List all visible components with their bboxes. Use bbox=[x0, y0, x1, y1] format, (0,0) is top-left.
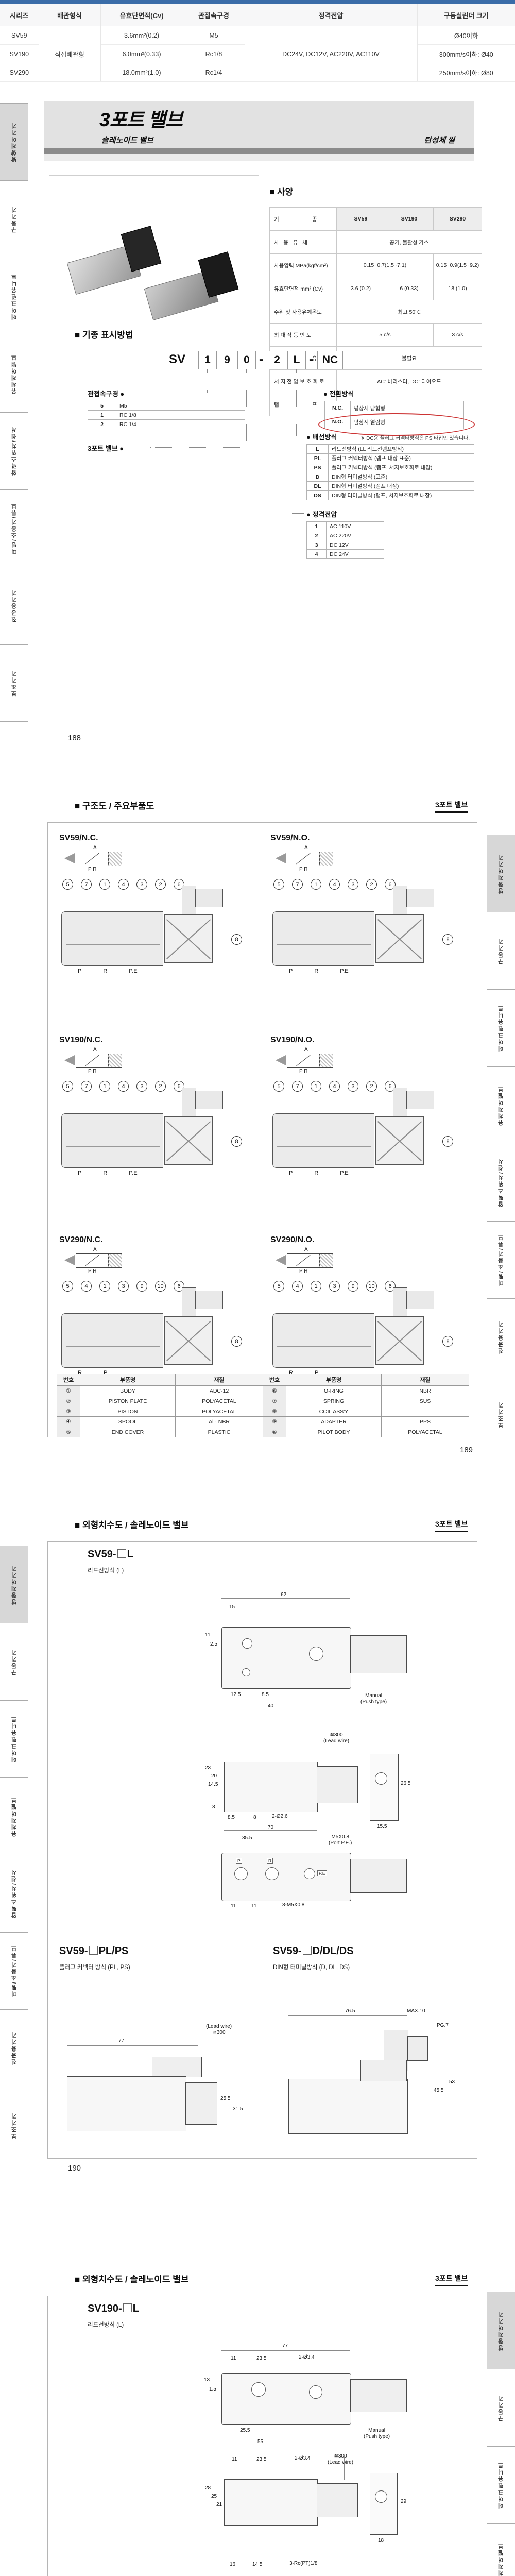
connector-line bbox=[164, 393, 207, 393]
manual-button[interactable] bbox=[309, 1647, 323, 1661]
table-cell: AC 110V bbox=[327, 522, 384, 531]
diagram-sv190-no: SV190/N.O. AP R 5714326 8 PRP.E bbox=[270, 1036, 466, 1178]
voltage-table: 1AC 110V2AC 220V3DC 12V4DC 24V bbox=[306, 521, 384, 559]
dim-pg7: PG.7 bbox=[437, 2023, 449, 2029]
col-series: 시리즈 bbox=[0, 4, 39, 26]
sidebar-tab-label: 보조기기 bbox=[497, 1401, 505, 1428]
table-cell: DS bbox=[307, 491, 329, 500]
callout-number: 1 bbox=[99, 1081, 110, 1092]
table-cell: POLYACETAL bbox=[382, 1427, 469, 1437]
symbol-port-a: A bbox=[93, 1047, 97, 1053]
table-cell: PISTON PLATE bbox=[80, 1396, 176, 1406]
connector-line bbox=[207, 369, 208, 393]
table-row: ④SPOOLAl · NBR⑨ADAPTERPPS bbox=[57, 1417, 469, 1427]
table-cell: DC24V, DC12V, AC220V, AC110V bbox=[245, 26, 417, 82]
dim-2-d3.4: 2-Ø3.4 bbox=[295, 2455, 311, 2462]
sidebar-tab-label: 진공용기기 bbox=[10, 2031, 19, 2065]
table-cell: 직접배관형 bbox=[39, 26, 100, 82]
table-cell: N.C. bbox=[325, 401, 351, 415]
table-row: ①BODYADC-12⑥O-RINGNBR bbox=[57, 1386, 469, 1396]
sidebar-tab-유체제어밸브[interactable]: 유체제어밸브 bbox=[487, 1067, 515, 1144]
callout-number: 3 bbox=[329, 1281, 340, 1292]
symbol-spring bbox=[276, 1055, 286, 1065]
dim-28: 28 bbox=[205, 2485, 211, 2492]
table-cell: BODY bbox=[80, 1386, 176, 1396]
model-code-section-title: ■ 기종 표시방법 bbox=[75, 328, 133, 341]
table-cell: 3 c/s bbox=[434, 324, 482, 347]
table-cell: DC 24V bbox=[327, 550, 384, 559]
dim-23.5: 23.5 bbox=[256, 2355, 266, 2362]
valve-symbol: AP R bbox=[59, 845, 142, 875]
symbol-port-a: A bbox=[304, 1047, 308, 1053]
callout-number: 4 bbox=[81, 1281, 92, 1292]
wiring-note: ※ DC용 플러그 커넥터방식은 PS 타입만 있습니다. bbox=[360, 434, 470, 442]
parts-col-material: 재질 bbox=[382, 1374, 469, 1386]
dim-3: 3 bbox=[212, 1804, 215, 1810]
table-cell: L bbox=[307, 445, 329, 454]
sidebar-tab-방향제어기기[interactable]: 방향제어기기 bbox=[487, 2292, 515, 2369]
title-divider-strip bbox=[44, 154, 474, 161]
dim-40: 40 bbox=[268, 1703, 273, 1709]
table-row: DSDIN형 터미널방식 (램프, 서지보호회로 내장) bbox=[307, 491, 474, 500]
table-row: 기 종SV59SV190SV290 bbox=[270, 208, 482, 231]
voltage-placeholder-box bbox=[89, 1946, 98, 1955]
dim-77: 77 bbox=[282, 2343, 288, 2349]
table-cell: 3 bbox=[307, 540, 327, 550]
voltage-label: ● 정격전압 bbox=[306, 509, 337, 519]
table-cell: RC 1/4 bbox=[116, 420, 245, 429]
sidebar-tab-압력스위치/센서[interactable]: 압력스위치/센서 bbox=[0, 1855, 28, 1933]
plug-stem bbox=[182, 1287, 196, 1318]
parts-header-row: 번호 부품명 재질 번호 부품명 재질 bbox=[57, 1374, 469, 1386]
dim-16: 16 bbox=[230, 2562, 235, 2568]
port-label: P.E bbox=[340, 968, 348, 974]
overview-table: 시리즈 배관형식 유효단면적(Cv) 관접속구경 정격전압 구동실린더 크기 S… bbox=[0, 4, 515, 82]
dim-3-m5x0.8: 3-M5X0.8 bbox=[282, 1902, 304, 1908]
model-code-sv59-l: SV59-L bbox=[88, 1549, 133, 1561]
spec-section-title: ■ 사양 bbox=[269, 184, 293, 197]
sidebar-tab-유체제어밸브[interactable]: 유체제어밸브 bbox=[487, 2524, 515, 2576]
callout-number: 5 bbox=[273, 1281, 284, 1292]
coil-assembly bbox=[375, 1116, 424, 1165]
screw-hole bbox=[375, 1772, 387, 1785]
dim-8: 8 bbox=[253, 1815, 256, 1821]
valve-body bbox=[272, 911, 374, 966]
code-suffix: L bbox=[133, 2303, 139, 2314]
port-hole bbox=[242, 1638, 252, 1649]
sidebar-tab-에어크린유니트[interactable]: 에어크린유니트 bbox=[487, 2447, 515, 2524]
valve-body bbox=[272, 1313, 374, 1368]
model-code-dash1: - bbox=[259, 352, 263, 367]
table-cell: 5 c/s bbox=[337, 324, 434, 347]
sidebar-tab-label: 피팅/소음기/튜브 bbox=[497, 1234, 505, 1286]
symbol-ports: P R bbox=[299, 1069, 308, 1074]
sidebar-tab-보조기기[interactable]: 보조기기 bbox=[0, 645, 28, 722]
diagram-title: SV190/N.C. bbox=[59, 1036, 255, 1045]
sidebar-tab-label: 에어크린유니트 bbox=[497, 2462, 505, 2509]
page-subtitle: 솔레노이드 밸브 bbox=[101, 134, 153, 145]
table-row: DLDIN형 터미널방식 (램프 내장) bbox=[307, 482, 474, 491]
sidebar-tab-진공용기기[interactable]: 진공용기기 bbox=[0, 2010, 28, 2087]
sidebar-tab-label: 방향제어기기 bbox=[10, 1565, 19, 1605]
lead-wire bbox=[201, 2066, 232, 2066]
port-hole bbox=[242, 1668, 250, 1676]
dimension-line bbox=[224, 1830, 317, 1831]
table-row: 주위 및 사용유체온도최고 50℃ bbox=[270, 300, 482, 324]
callout-number: 4 bbox=[329, 879, 340, 890]
dim-21: 21 bbox=[216, 2502, 222, 2508]
table-cell: 공기, 불활성 가스 bbox=[337, 231, 482, 254]
sidebar-tab-피팅/소음기/튜브[interactable]: 피팅/소음기/튜브 bbox=[0, 490, 28, 567]
table-cell: O-RING bbox=[286, 1386, 382, 1396]
port-label: R bbox=[314, 1170, 318, 1176]
model-code-wiring[interactable]: L bbox=[287, 351, 306, 369]
sidebar-tab-방향제어기기[interactable]: 방향제어기기 bbox=[487, 835, 515, 912]
top-view-connector bbox=[350, 2379, 407, 2412]
plug-head bbox=[406, 889, 434, 907]
code-prefix: SV59- bbox=[59, 1945, 88, 1957]
connector-line bbox=[246, 369, 247, 447]
col-area: 유효단면적(Cv) bbox=[100, 4, 183, 26]
model-code-sv: SV bbox=[169, 352, 185, 367]
table-row: 서 지 전 압 보 호 회 로AC: 바리스터, DC: 다이오드 bbox=[270, 370, 482, 393]
sidebar-tab-에어크린유니트[interactable]: 에어크린유니트 bbox=[0, 1701, 28, 1778]
callout-row: 5714326 bbox=[273, 879, 466, 890]
table-cell: PL bbox=[307, 454, 329, 463]
lead-wire-line bbox=[344, 2455, 345, 2480]
symbol-ports: P R bbox=[88, 1069, 97, 1074]
top-view-body bbox=[221, 2373, 351, 2425]
screw-hole bbox=[375, 2490, 387, 2503]
sidebar-tab-label: 에어크린유니트 bbox=[10, 1716, 19, 1762]
port-r-hole bbox=[265, 1867, 279, 1880]
side-view-solenoid bbox=[317, 1766, 358, 1803]
structure-section-title: ■ 구조도 / 주요부품도 bbox=[75, 799, 154, 811]
callout-number: 1 bbox=[99, 879, 110, 890]
title-block: 3포트 밸브 솔레노이드 밸브 탄성체 씰 bbox=[44, 101, 474, 148]
port-size-label: 관접속구경 ● bbox=[88, 388, 124, 398]
port-pe-hole bbox=[304, 1868, 315, 1879]
model-desc: DIN형 터미널방식 (D, DL, DS) bbox=[273, 1963, 350, 1971]
table-cell: RC 1/8 bbox=[116, 411, 245, 420]
model-code-sv59-d: SV59-D/DL/DS bbox=[273, 1945, 354, 1957]
table-cell: 1 bbox=[88, 411, 116, 420]
sidebar-tab-유체제어밸브[interactable]: 유체제어밸브 bbox=[0, 1778, 28, 1855]
symbol-coil bbox=[319, 852, 333, 866]
label-manual: Manual (Push type) bbox=[360, 1693, 387, 1705]
pl-endblock bbox=[185, 2082, 217, 2125]
table-cell: 최 대 작 동 빈 도 bbox=[270, 324, 337, 347]
table-cell: 6.0mm²(0.33) bbox=[100, 45, 183, 63]
sidebar-tab-방향제어기기[interactable]: 방향제어기기 bbox=[0, 1546, 28, 1623]
d-solenoid bbox=[360, 2060, 407, 2081]
model-code-digit-9[interactable]: 9 bbox=[218, 351, 236, 369]
dimension-line bbox=[288, 2015, 407, 2016]
plug-stem bbox=[393, 1088, 407, 1118]
sidebar-tab-label: 보조기기 bbox=[10, 670, 19, 697]
table-cell: Ø40이하 bbox=[417, 26, 515, 45]
bottom-view-connector bbox=[350, 1859, 407, 1893]
dim-45.5: 45.5 bbox=[434, 2088, 443, 2094]
sidebar-tab-압력스위치/센서[interactable]: 압력스위치/센서 bbox=[487, 1144, 515, 1222]
port-hole bbox=[251, 2382, 266, 2397]
callout-number: 2 bbox=[155, 879, 166, 890]
table-cell: DIN형 터미널방식 (램프, 서지보호회로 내장) bbox=[329, 491, 474, 500]
table-cell: SV59 bbox=[337, 208, 385, 231]
symbol-coil bbox=[319, 1253, 333, 1268]
model-code-digit-0[interactable]: 0 bbox=[237, 351, 256, 369]
table-row: PS플러그 커넥터방식 (램프, 서지보호회로 내장) bbox=[307, 463, 474, 472]
table-cell: ADAPTER bbox=[286, 1417, 382, 1427]
symbol-box bbox=[287, 1054, 320, 1068]
callout-number: 2 bbox=[366, 1081, 377, 1092]
table-cell: M5 bbox=[183, 26, 245, 45]
sidebar-tab-구동기기[interactable]: 구동기기 bbox=[487, 2369, 515, 2447]
dim-14.5: 14.5 bbox=[208, 1782, 218, 1788]
model-desc: 리드선방식 (L) bbox=[88, 1566, 124, 1574]
callout-number: 4 bbox=[118, 1081, 129, 1092]
valve-body bbox=[61, 911, 163, 966]
table-row: 2RC 1/4 bbox=[88, 420, 245, 429]
table-cell: ⑦ bbox=[263, 1396, 286, 1406]
cross-section-drawing: 8 RP bbox=[270, 1296, 461, 1378]
callout-number: 1 bbox=[311, 1081, 321, 1092]
sidebar-tab-보조기기[interactable]: 보조기기 bbox=[0, 2087, 28, 2164]
table-cell: PILOT BODY bbox=[286, 1427, 382, 1437]
label-lead-wire: ≅300 (Lead wire) bbox=[328, 2453, 353, 2466]
table-cell: 5 bbox=[88, 401, 116, 411]
diagram-title: SV59/N.O. bbox=[270, 834, 466, 843]
symbol-port-a: A bbox=[93, 845, 97, 851]
table-cell: 250mm/s이하: Ø80 bbox=[417, 63, 515, 82]
table-cell: ⑧ bbox=[263, 1406, 286, 1417]
port-label: P bbox=[289, 968, 293, 974]
callout-8: 8 bbox=[231, 934, 242, 945]
table-cell: 불필요 bbox=[337, 347, 482, 370]
dim-20: 20 bbox=[211, 1773, 217, 1780]
valve-body bbox=[61, 1113, 163, 1168]
col-voltage: 정격전압 bbox=[245, 4, 417, 26]
sidebar-tab-유체제어밸브[interactable]: 유체제어밸브 bbox=[0, 335, 28, 413]
dim-25: 25 bbox=[211, 2494, 217, 2500]
dim-25.5: 25.5 bbox=[240, 2428, 250, 2434]
symbol-box bbox=[76, 1253, 109, 1268]
table-cell: PISTON bbox=[80, 1406, 176, 1417]
plug-stem bbox=[182, 886, 196, 917]
symbol-coil bbox=[108, 852, 122, 866]
sidebar-tab-label: 유체제어밸브 bbox=[10, 354, 19, 394]
callout-8: 8 bbox=[442, 1136, 453, 1147]
dim-35.5: 35.5 bbox=[242, 1835, 252, 1841]
product-photo bbox=[49, 175, 259, 419]
symbol-port-a: A bbox=[304, 1247, 308, 1252]
diagram-title: SV290/N.O. bbox=[270, 1235, 466, 1245]
code-suffix: L bbox=[127, 1549, 133, 1560]
sidebar-tab-label: 피팅/소음기/튜브 bbox=[10, 1945, 19, 1997]
table-cell: 300mm/s이하: Ø40 bbox=[417, 45, 515, 63]
sidebar-tab-구동기기[interactable]: 구동기기 bbox=[0, 1623, 28, 1701]
dim-23: 23 bbox=[205, 1765, 211, 1771]
pl-body bbox=[67, 2076, 186, 2131]
dim-55: 55 bbox=[257, 2439, 263, 2445]
sidebar-tab-label: 구동기기 bbox=[497, 938, 505, 964]
plug-head bbox=[195, 889, 223, 907]
symbol-ports: P R bbox=[299, 1268, 308, 1274]
callout-number: 7 bbox=[292, 879, 303, 890]
callout-number: 10 bbox=[155, 1281, 166, 1292]
callout-number: 5 bbox=[273, 879, 284, 890]
model-code-voltage[interactable]: 2 bbox=[268, 351, 286, 369]
callout-number: 10 bbox=[366, 1281, 377, 1292]
plug-head bbox=[195, 1291, 223, 1309]
table-cell: 리드선방식 (LL 리드선램프방식) bbox=[329, 445, 474, 454]
sidebar-tab-진공용기기[interactable]: 진공용기기 bbox=[0, 567, 28, 645]
sidebar-tab-label: 에어크린유니트 bbox=[10, 273, 19, 320]
sidebar-tab-에어크린유니트[interactable]: 에어크린유니트 bbox=[0, 258, 28, 335]
diagram-sv290-no: SV290/N.O. AP R 54139106 8 RP bbox=[270, 1235, 466, 1378]
page-number-188: 188 bbox=[68, 734, 81, 742]
port-row: PRP.E bbox=[289, 1170, 349, 1176]
label-lead-wire: ≅300 (Lead wire) bbox=[323, 1732, 349, 1744]
table-cell: 플러그 커넥터방식 (램프, 서지보호회로 내장) bbox=[329, 463, 474, 472]
sidebar-tab-에어크린유니트[interactable]: 에어크린유니트 bbox=[487, 990, 515, 1067]
label-port-pe: M5X0.8 (Port P.E.) bbox=[329, 1834, 352, 1846]
sidebar-tab-구동기기[interactable]: 구동기기 bbox=[0, 181, 28, 258]
table-cell: D bbox=[307, 472, 329, 482]
plug-stem bbox=[393, 886, 407, 917]
switch-type-label: ● 전환방식 bbox=[323, 388, 354, 398]
page-title: 3포트 밸브 bbox=[99, 104, 182, 132]
page-number-189: 189 bbox=[460, 1446, 473, 1454]
table-cell: SPOOL bbox=[80, 1417, 176, 1427]
callout-number: 5 bbox=[273, 1081, 284, 1092]
table-cell: PPS bbox=[382, 1417, 469, 1427]
sidebar-tab-label: 피팅/소음기/튜브 bbox=[10, 502, 19, 554]
table-cell: ③ bbox=[57, 1406, 80, 1417]
cross-section-drawing: 8 PRP.E bbox=[59, 894, 250, 976]
connector-line bbox=[150, 447, 246, 448]
sidebar-tab-label: 유체제어밸브 bbox=[497, 1086, 505, 1126]
table-cell: SV59 bbox=[0, 26, 39, 45]
col-port: 관접속구경 bbox=[183, 4, 245, 26]
callout-number: 3 bbox=[118, 1281, 129, 1292]
table-row: SV59직접배관형3.6mm²(0.2)M5DC24V, DC12V, AC22… bbox=[0, 26, 515, 45]
dim-15: 15 bbox=[229, 1604, 235, 1611]
manual-button[interactable] bbox=[309, 2385, 322, 2399]
cross-section-drawing: 8 PRP.E bbox=[270, 1096, 461, 1178]
dim-18: 18 bbox=[378, 2538, 384, 2544]
symbol-ports: P R bbox=[88, 1268, 97, 1274]
symbol-spring bbox=[276, 853, 286, 863]
sidebar-page2: 방향제어기기구동기기에어크린유니트유체제어밸브압력스위치/센서피팅/소음기/튜브… bbox=[487, 835, 515, 1453]
sidebar-tab-label: 구동기기 bbox=[10, 1649, 19, 1675]
port-label: P bbox=[78, 1170, 81, 1176]
dimension-content-box-sv190 bbox=[47, 2296, 477, 2576]
table-cell bbox=[382, 1406, 469, 1417]
sidebar-tab-label: 에어크린유니트 bbox=[497, 1005, 505, 1052]
table-row: L리드선방식 (LL 리드선램프방식) bbox=[307, 445, 474, 454]
parts-col-name: 부품명 bbox=[286, 1374, 382, 1386]
table-cell: 유효단면적 mm² (Cv) bbox=[270, 277, 337, 300]
table-cell: 0.15~0.7(1.5~7.1) bbox=[337, 254, 434, 277]
table-cell: 플러그 커넥터방식 (램프 내장 표준) bbox=[329, 454, 474, 463]
plug-stem bbox=[182, 1088, 196, 1118]
pl-solenoid bbox=[152, 2057, 202, 2077]
dim-23.5: 23.5 bbox=[256, 2456, 266, 2463]
sidebar-tab-피팅/소음기/튜브[interactable]: 피팅/소음기/튜브 bbox=[0, 1933, 28, 2010]
connector-line bbox=[277, 513, 304, 514]
dimension-section-title-sv59: ■ 외형치수도 / 솔레노이드 밸브 bbox=[75, 1518, 189, 1531]
wiring-type-table: L리드선방식 (LL 리드선램프방식)PL플러그 커넥터방식 (램프 내장 표준… bbox=[306, 444, 474, 500]
callout-number: 2 bbox=[366, 879, 377, 890]
table-cell: Al · NBR bbox=[176, 1417, 263, 1427]
table-row: 4DC 24V bbox=[307, 550, 384, 559]
callout-row: 5714326 bbox=[62, 1081, 255, 1092]
table-cell: 18 (1.0) bbox=[434, 277, 482, 300]
sidebar-tab-구동기기[interactable]: 구동기기 bbox=[487, 912, 515, 990]
callout-number: 5 bbox=[62, 1081, 73, 1092]
callout-8: 8 bbox=[442, 1336, 453, 1347]
table-cell: DL bbox=[307, 482, 329, 491]
table-cell: 기 종 bbox=[270, 208, 337, 231]
port-label: R bbox=[314, 968, 318, 974]
table-cell: ⑩ bbox=[263, 1427, 286, 1437]
table-cell: Rc1/4 bbox=[183, 63, 245, 82]
top-view-body bbox=[221, 1627, 351, 1689]
dim-11: 11 bbox=[251, 1903, 256, 1909]
table-cell: SPRING bbox=[286, 1396, 382, 1406]
sidebar-tab-피팅/소음기/튜브[interactable]: 피팅/소음기/튜브 bbox=[487, 1222, 515, 1299]
port-label: P.E bbox=[129, 968, 137, 974]
dim-15.5: 15.5 bbox=[377, 1824, 387, 1830]
table-cell: 18.0mm²(1.0) bbox=[100, 63, 183, 82]
table-cell: PS bbox=[307, 463, 329, 472]
sidebar-tab-label: 방향제어기기 bbox=[10, 122, 19, 162]
sidebar-tab-진공용기기[interactable]: 진공용기기 bbox=[487, 1299, 515, 1376]
dimension-line bbox=[67, 2045, 198, 2046]
catalog-page: 시리즈 배관형식 유효단면적(Cv) 관접속구경 정격전압 구동실린더 크기 S… bbox=[0, 0, 515, 2576]
symbol-ports: P R bbox=[299, 867, 308, 872]
symbol-coil bbox=[319, 1054, 333, 1068]
dimension-line bbox=[221, 2350, 350, 2351]
sidebar-tab-label: 압력스위치/센서 bbox=[10, 1869, 19, 1918]
no-highlight-ellipse bbox=[318, 413, 475, 436]
side-right-view bbox=[370, 1754, 399, 1821]
sidebar-tab-압력스위치/센서[interactable]: 압력스위치/센서 bbox=[0, 413, 28, 490]
dimension-line bbox=[221, 1598, 350, 1599]
dim-14.5: 14.5 bbox=[252, 2562, 262, 2568]
voltage-placeholder-box bbox=[123, 2303, 132, 2312]
code-prefix: SV59- bbox=[273, 1945, 302, 1957]
table-row: DDIN형 터미널방식 (표준) bbox=[307, 472, 474, 482]
code-prefix: SV190- bbox=[88, 2303, 122, 2314]
sidebar-tab-방향제어기기[interactable]: 방향제어기기 bbox=[0, 104, 28, 181]
table-cell: 주위 및 사용유체온도 bbox=[270, 300, 337, 324]
connector-line bbox=[277, 369, 277, 513]
model-code-nc[interactable]: NC bbox=[317, 351, 343, 369]
sidebar-tab-label: 진공용기기 bbox=[497, 1320, 505, 1354]
symbol-coil bbox=[108, 1253, 122, 1268]
model-code-digit-1[interactable]: 1 bbox=[198, 351, 217, 369]
valve-symbol: AP R bbox=[59, 1247, 142, 1277]
sidebar-tab-보조기기[interactable]: 보조기기 bbox=[487, 1376, 515, 1453]
table-cell: DIN형 터미널방식 (램프 내장) bbox=[329, 482, 474, 491]
callout-number: 1 bbox=[311, 1281, 321, 1292]
sidebar-tab-label: 압력스위치/센서 bbox=[497, 1158, 505, 1207]
table-row: PL플러그 커넥터방식 (램프 내장 표준) bbox=[307, 454, 474, 463]
side-view-solenoid bbox=[317, 2483, 358, 2517]
callout-number: 5 bbox=[62, 879, 73, 890]
